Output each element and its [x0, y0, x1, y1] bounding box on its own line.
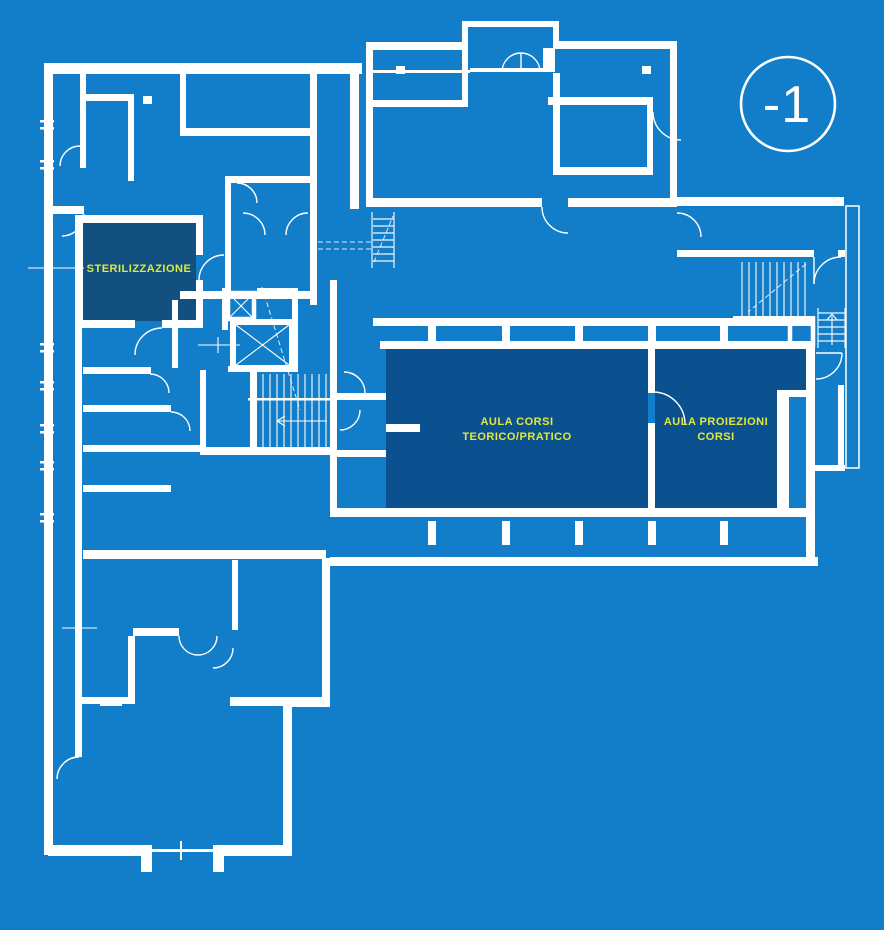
- label-aula-corsi-line2: TEORICO/PRATICO: [462, 431, 571, 443]
- stairs-upper-right: [742, 262, 806, 316]
- level-indicator-label: -1: [763, 76, 811, 134]
- floor-plan-drawing: STERILIZZAZIONE AULA CORSI TEORICO/PRATI…: [0, 0, 884, 930]
- label-sterilizzazione: STERILIZZAZIONE: [87, 263, 192, 275]
- construction-dashed-lines: [318, 242, 371, 249]
- elevators: [222, 288, 298, 372]
- exterior-strip-outline: [846, 206, 859, 468]
- elevator-large-icon: [233, 322, 292, 368]
- label-aula-proiezioni-line2: CORSI: [697, 431, 734, 443]
- level-indicator: -1: [741, 57, 835, 151]
- stairs-hall-mini: [372, 212, 394, 268]
- blueprint-floor-plan: STERILIZZAZIONE AULA CORSI TEORICO/PRATI…: [0, 0, 884, 930]
- label-aula-corsi-line1: AULA CORSI: [480, 416, 553, 428]
- door-arc-icon: [60, 146, 80, 166]
- room-aula-corsi: [386, 349, 648, 509]
- label-aula-proiezioni-line1: AULA PROIEZIONI: [664, 416, 768, 428]
- room-fills: [83, 222, 806, 509]
